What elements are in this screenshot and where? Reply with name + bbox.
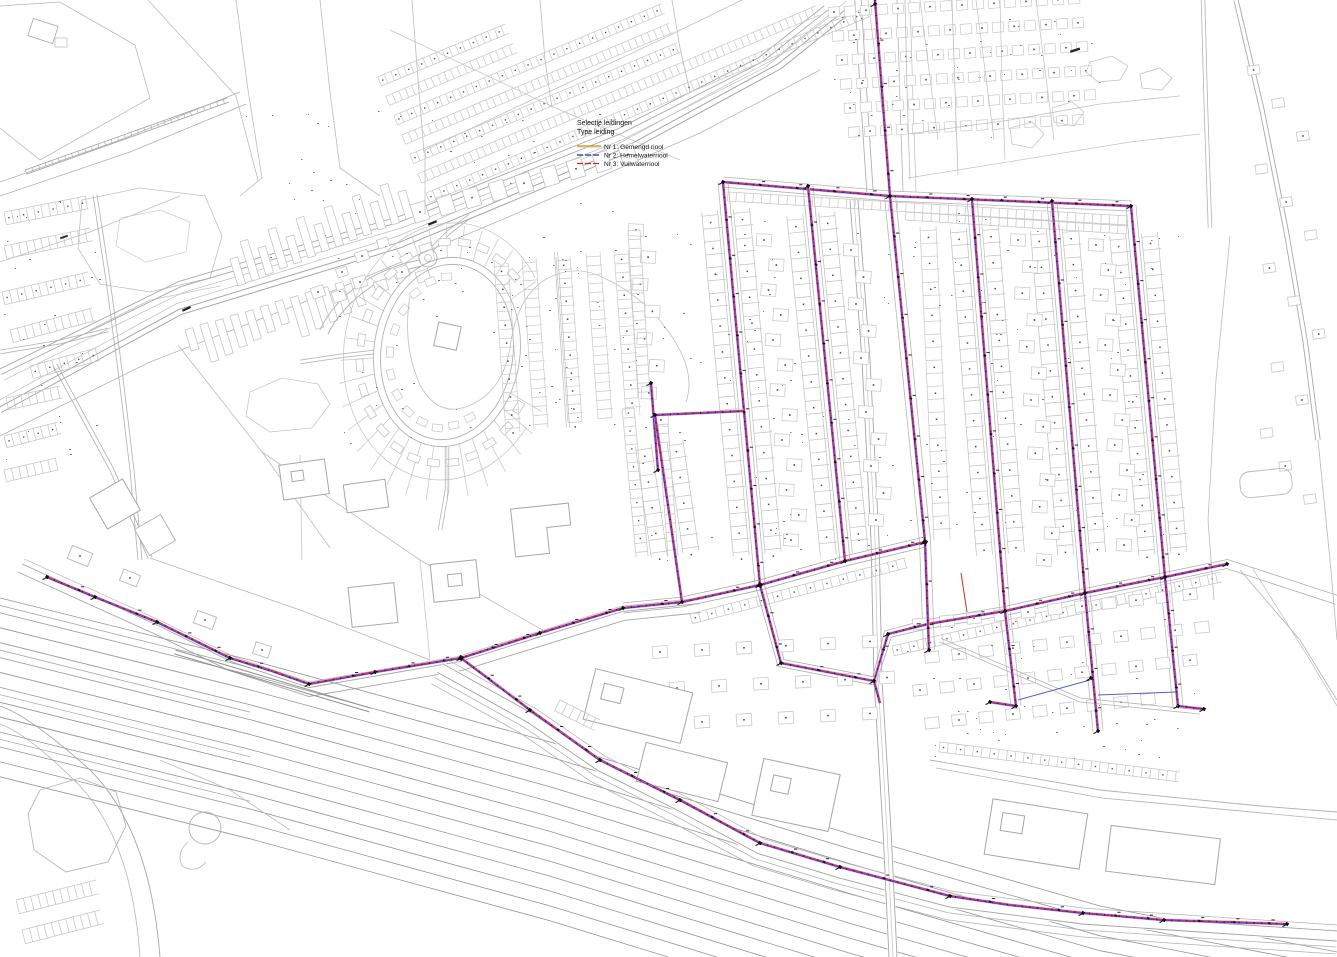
svg-text:Nr 2: Hemelwaterriool: Nr 2: Hemelwaterriool <box>604 153 668 160</box>
svg-text:Nr 1: Gemengd riool: Nr 1: Gemengd riool <box>604 144 664 151</box>
svg-text:Nr 3: Vuilwaterriool: Nr 3: Vuilwaterriool <box>604 161 660 168</box>
svg-text:Type leiding: Type leiding <box>577 129 614 136</box>
svg-text:Selectie leidingen: Selectie leidingen <box>577 120 632 127</box>
